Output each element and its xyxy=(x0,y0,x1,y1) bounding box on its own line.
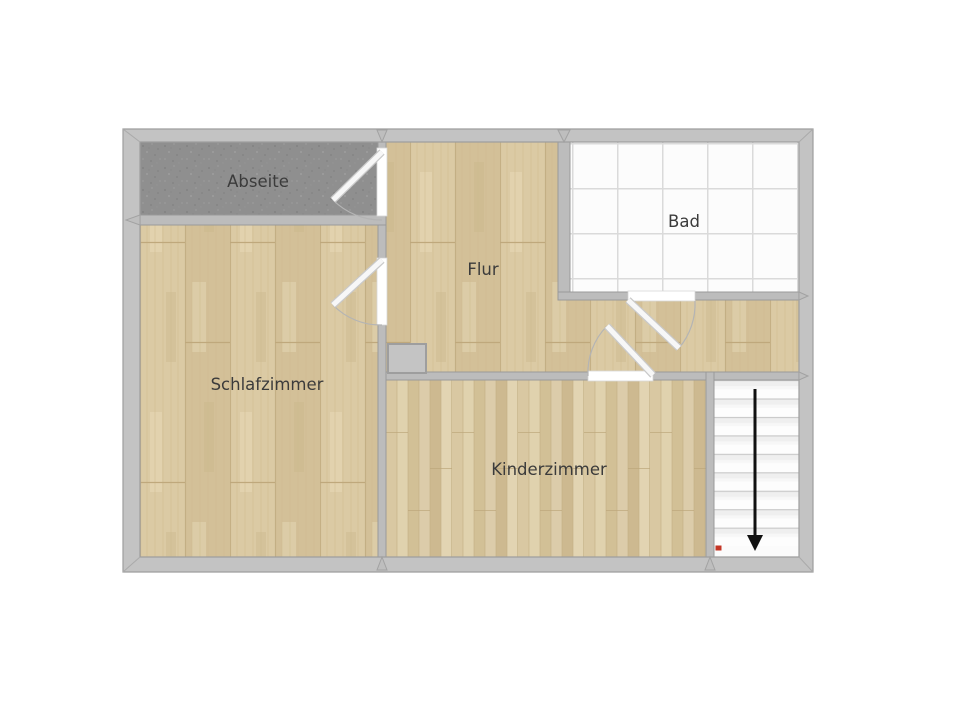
wall-bad-left xyxy=(558,142,570,292)
chimney-block xyxy=(388,344,426,373)
floorplan-drawing: Abseite Flur Bad Schlafzimmer Kinderzimm… xyxy=(0,0,960,715)
door-bad-opening xyxy=(628,291,695,301)
label-kinderzimmer: Kinderzimmer xyxy=(491,460,607,479)
wall-bad-bottom-left xyxy=(558,292,628,300)
label-bad: Bad xyxy=(668,212,700,231)
wall-flur-stairs-right xyxy=(653,372,799,380)
wall-schlafzimmer-kinderzimmer xyxy=(378,325,386,557)
wall-stairwell-left xyxy=(706,372,714,557)
wall-bad-bottom-right xyxy=(695,292,799,300)
room-floors xyxy=(140,142,799,557)
label-flur: Flur xyxy=(467,260,499,279)
floorplan-canvas: Abseite Flur Bad Schlafzimmer Kinderzimm… xyxy=(0,0,960,715)
door-kinderzimmer-opening xyxy=(588,371,653,381)
label-abseite: Abseite xyxy=(227,172,289,191)
wall-flur-schlafzimmer-upper xyxy=(378,225,386,258)
label-schlafzimmer: Schlafzimmer xyxy=(211,375,324,394)
staircase xyxy=(714,380,799,557)
wall-abseite-bottom xyxy=(140,215,386,225)
stair-entry-marker xyxy=(716,546,722,551)
